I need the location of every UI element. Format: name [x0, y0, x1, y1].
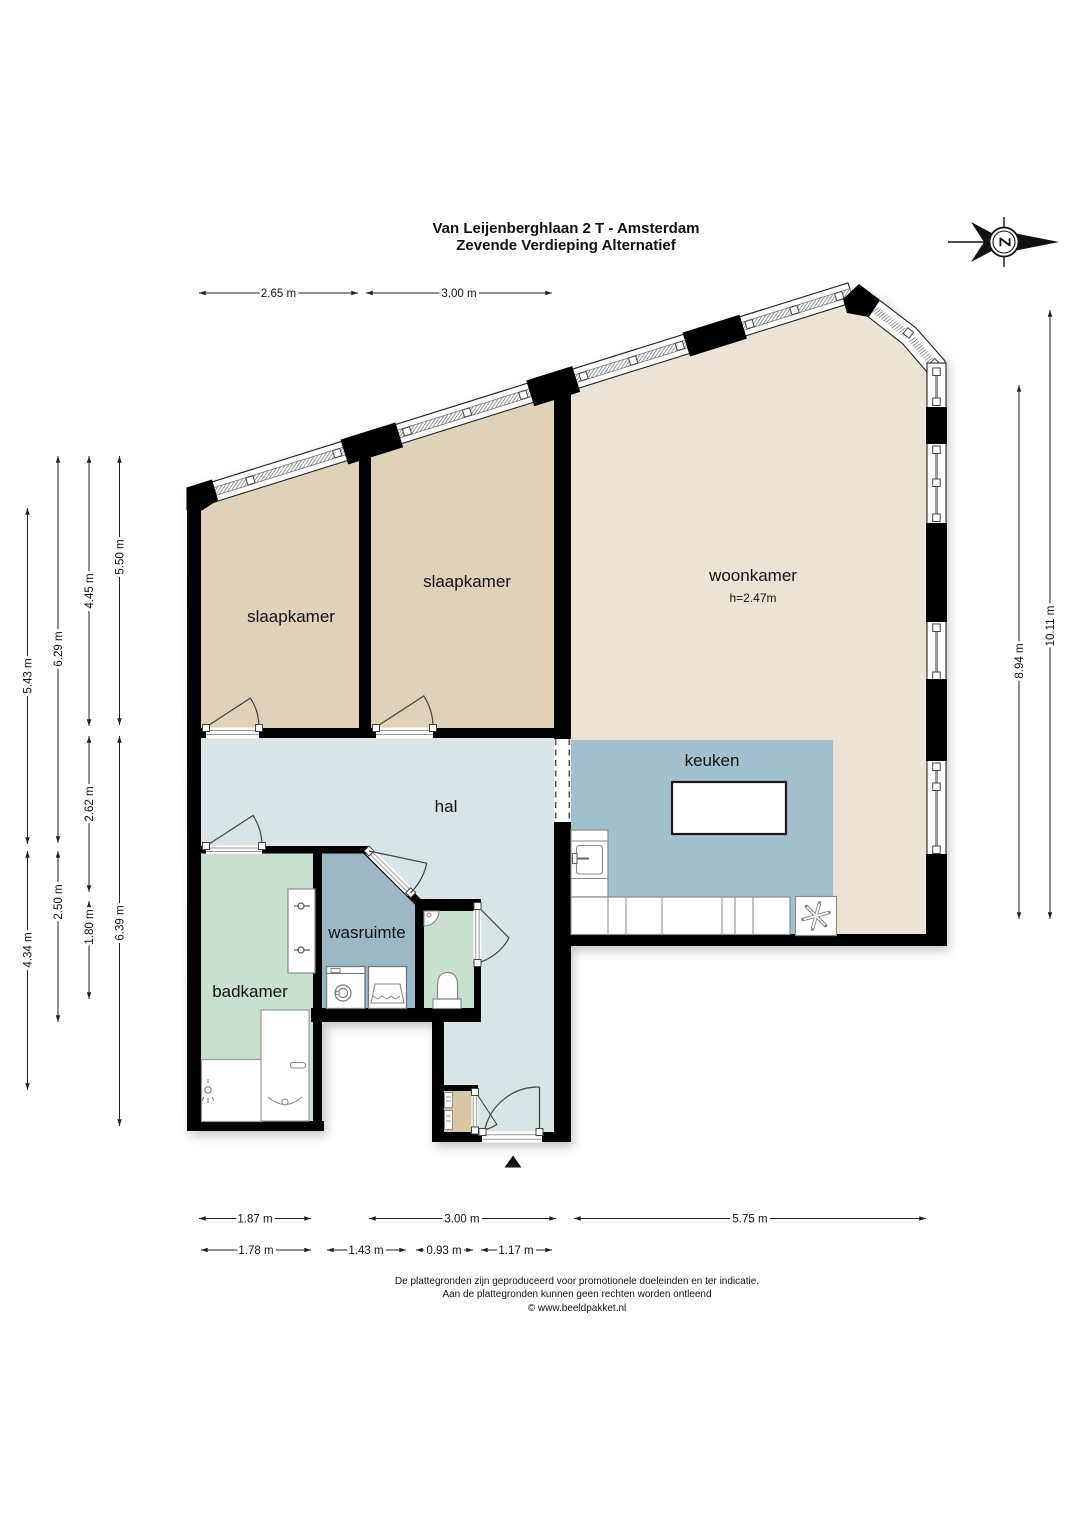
svg-text:0.93 m: 0.93 m: [426, 1245, 461, 1257]
svg-text:8.94 m: 8.94 m: [1014, 643, 1026, 678]
svg-text:Aan de plattegronden kunnen ge: Aan de plattegronden kunnen geen rechten…: [442, 1289, 711, 1300]
svg-text:© www.beeldpakket.nl: © www.beeldpakket.nl: [528, 1303, 627, 1314]
svg-text:6.29 m: 6.29 m: [53, 631, 65, 666]
svg-text:1.43 m: 1.43 m: [348, 1245, 383, 1257]
svg-text:Zevende Verdieping Alternatief: Zevende Verdieping Alternatief: [456, 237, 677, 254]
svg-text:hal: hal: [435, 797, 458, 816]
svg-text:1.80 m: 1.80 m: [84, 909, 96, 944]
svg-text:badkamer: badkamer: [212, 982, 288, 1001]
svg-text:wasruimte: wasruimte: [327, 923, 405, 942]
svg-text:1.87 m: 1.87 m: [237, 1214, 272, 1226]
svg-text:3.00 m: 3.00 m: [444, 1214, 479, 1226]
svg-text:1.17 m: 1.17 m: [498, 1245, 533, 1257]
svg-text:10.11 m: 10.11 m: [1045, 606, 1057, 647]
svg-text:4.34 m: 4.34 m: [23, 932, 35, 967]
svg-text:De plattegronden zijn geproduc: De plattegronden zijn geproduceerd voor …: [395, 1276, 759, 1287]
svg-text:slaapkamer: slaapkamer: [423, 572, 511, 591]
svg-text:Van Leijenberghlaan 2 T - Amst: Van Leijenberghlaan 2 T - Amsterdam: [432, 220, 699, 237]
svg-text:1.78 m: 1.78 m: [238, 1245, 273, 1257]
svg-text:6.39 m: 6.39 m: [115, 905, 127, 940]
svg-text:2.50 m: 2.50 m: [53, 884, 65, 919]
svg-text:2.62 m: 2.62 m: [84, 786, 96, 821]
svg-text:keuken: keuken: [685, 751, 740, 770]
svg-text:5.75 m: 5.75 m: [732, 1214, 767, 1226]
svg-text:5.50 m: 5.50 m: [115, 539, 127, 574]
svg-text:Z: Z: [996, 237, 1013, 247]
svg-text:2.65 m: 2.65 m: [261, 288, 296, 300]
svg-text:woonkamer: woonkamer: [708, 566, 797, 585]
svg-text:slaapkamer: slaapkamer: [247, 607, 335, 626]
svg-text:3.00 m: 3.00 m: [441, 288, 476, 300]
svg-text:h=2.47m: h=2.47m: [729, 591, 776, 605]
svg-text:5.43 m: 5.43 m: [23, 658, 35, 693]
svg-text:4.45 m: 4.45 m: [84, 573, 96, 608]
